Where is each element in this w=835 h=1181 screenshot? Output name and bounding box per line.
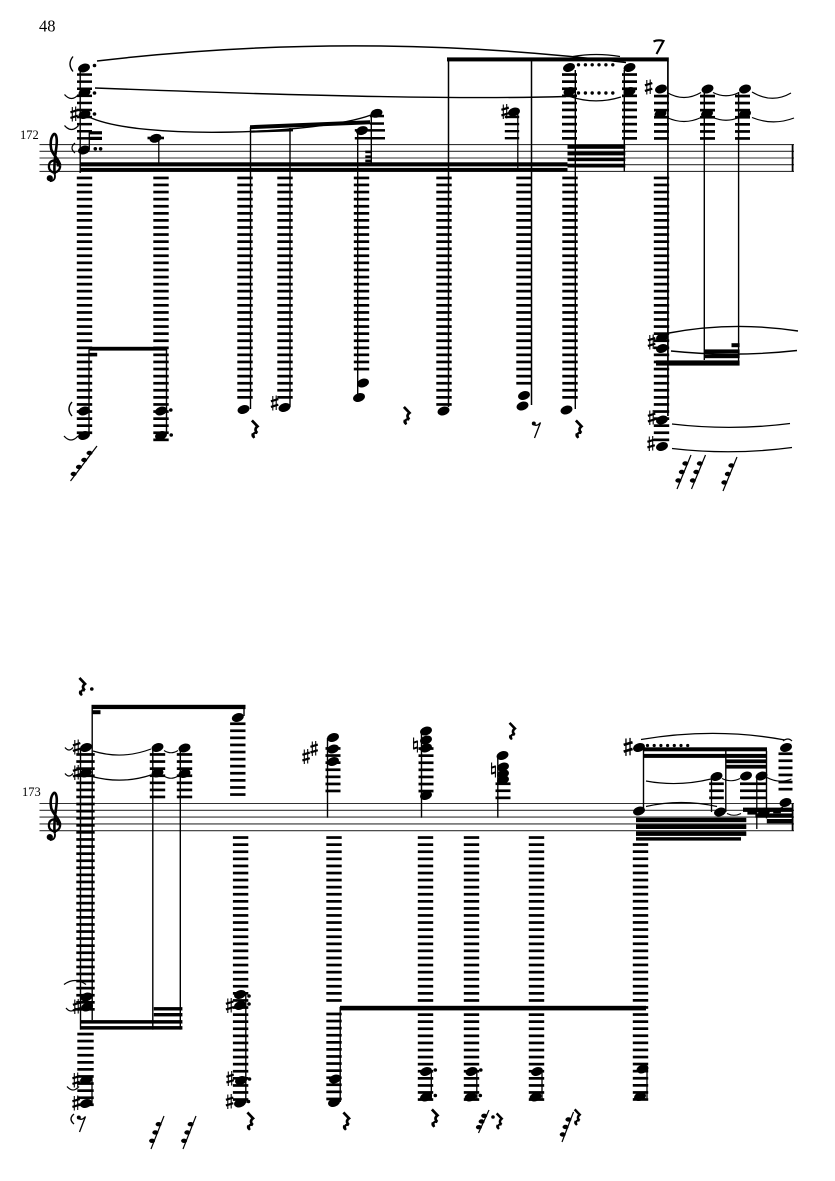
svg-text:172: 172 [20, 128, 39, 142]
svg-text:48: 48 [39, 16, 56, 35]
svg-text:173: 173 [22, 785, 41, 799]
